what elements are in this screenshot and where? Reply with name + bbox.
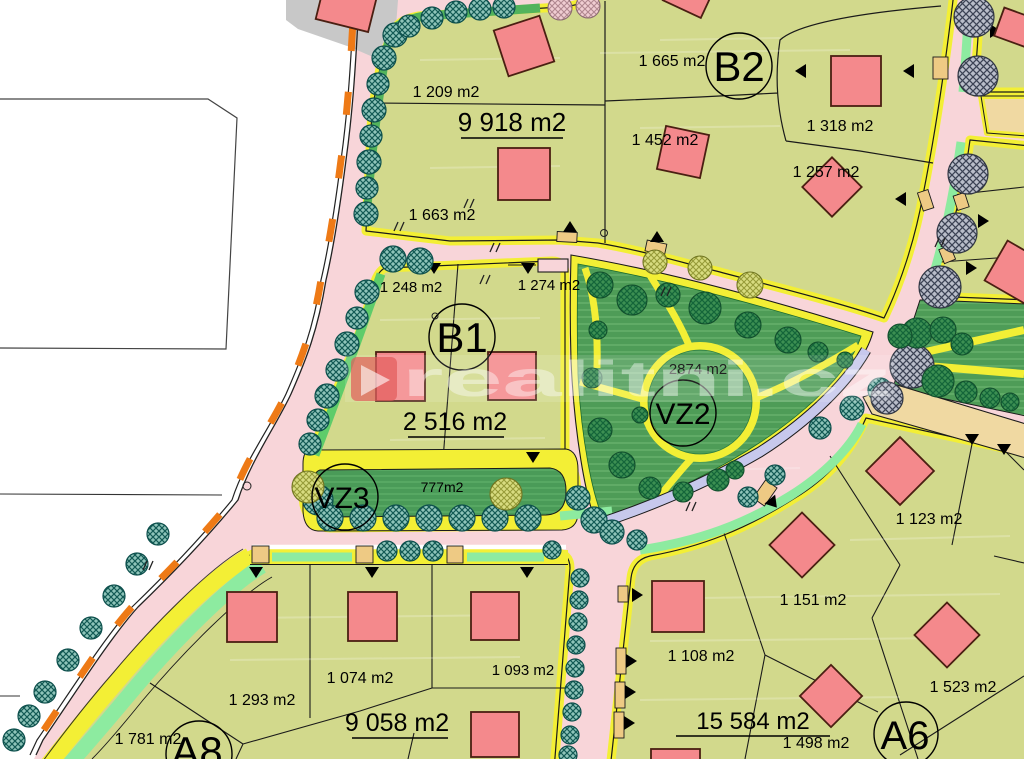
- svg-text:1 074 m2: 1 074 m2: [327, 670, 394, 687]
- svg-text:VZ3: VZ3: [314, 482, 369, 515]
- svg-text:1 093 m2: 1 093 m2: [492, 662, 555, 679]
- svg-text:9 918 m2: 9 918 m2: [458, 107, 566, 137]
- svg-text:1 523 m2: 1 523 m2: [930, 679, 997, 696]
- svg-text:1 663 m2: 1 663 m2: [409, 207, 476, 224]
- svg-text:A6: A6: [881, 714, 930, 758]
- svg-text:1 452 m2: 1 452 m2: [632, 132, 699, 149]
- svg-text:1 665 m2: 1 665 m2: [639, 53, 706, 70]
- svg-text:1 293 m2: 1 293 m2: [229, 692, 296, 709]
- svg-text:2 516 m2: 2 516 m2: [403, 408, 507, 436]
- svg-text:1 151 m2: 1 151 m2: [780, 592, 847, 609]
- svg-text:1 318 m2: 1 318 m2: [807, 118, 874, 135]
- svg-text:1 108 m2: 1 108 m2: [668, 648, 735, 665]
- svg-text:1 498 m2: 1 498 m2: [783, 735, 850, 752]
- svg-text:1 123 m2: 1 123 m2: [896, 511, 963, 528]
- svg-text:A8: A8: [171, 728, 222, 759]
- svg-text:777m2: 777m2: [421, 479, 464, 495]
- svg-text:1 248 m2: 1 248 m2: [380, 279, 443, 296]
- svg-text:1 257 m2: 1 257 m2: [793, 164, 860, 181]
- svg-text:B2: B2: [713, 43, 764, 90]
- svg-text:9 058 m2: 9 058 m2: [345, 709, 449, 737]
- svg-text:realitni.cz: realitni.cz: [402, 351, 892, 407]
- svg-text:1 209 m2: 1 209 m2: [413, 84, 480, 101]
- svg-text:1 274 m2: 1 274 m2: [518, 277, 581, 294]
- svg-text:15 584 m2: 15 584 m2: [696, 708, 809, 735]
